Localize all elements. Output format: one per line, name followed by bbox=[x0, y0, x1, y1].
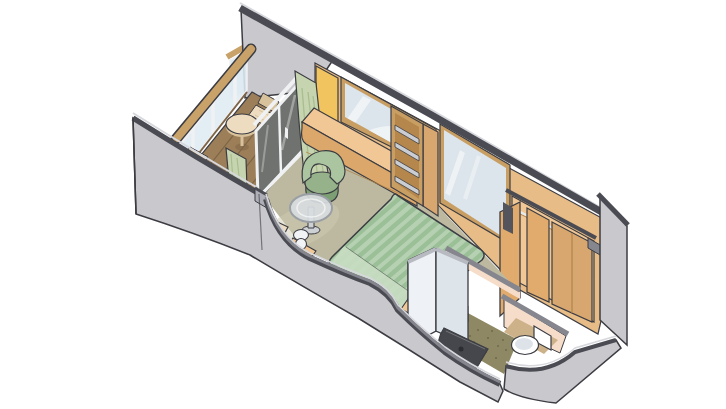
floorplan-canvas bbox=[0, 0, 726, 409]
stateroom-floorplan-illustration bbox=[0, 0, 726, 409]
shower-drain bbox=[459, 347, 464, 352]
wardrobe-door-center bbox=[527, 208, 549, 302]
shower-wall-right bbox=[436, 249, 468, 345]
door-handle bbox=[285, 127, 288, 139]
toilet-seat bbox=[515, 338, 533, 350]
shelf-side-panel bbox=[423, 124, 438, 216]
